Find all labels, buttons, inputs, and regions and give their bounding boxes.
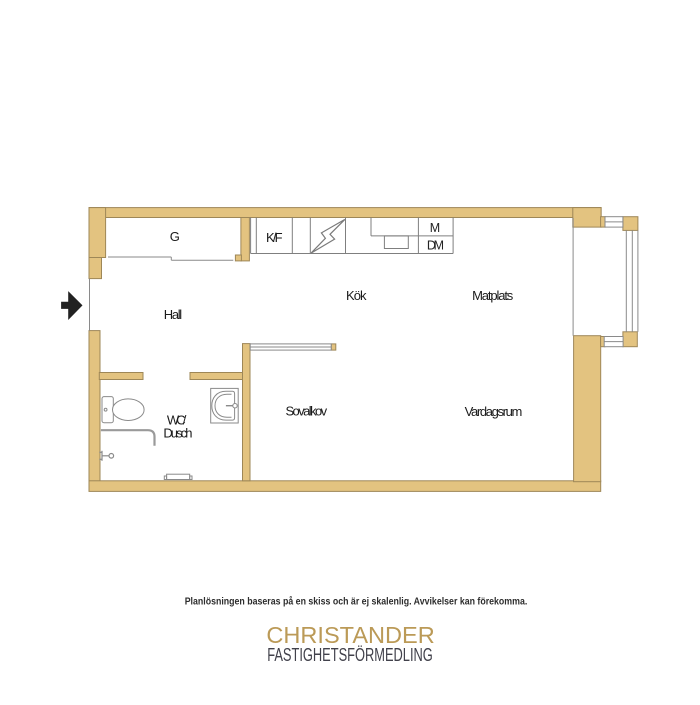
svg-text:Sovalkov: Sovalkov: [285, 404, 327, 419]
svg-text:Kök: Kök: [346, 288, 367, 303]
svg-text:Hall: Hall: [164, 307, 183, 322]
svg-text:K/F: K/F: [266, 230, 283, 245]
svg-text:Matplats: Matplats: [472, 288, 514, 303]
svg-text:G: G: [170, 229, 180, 244]
svg-text:M: M: [430, 221, 440, 235]
svg-text:Planlösningen baseras på en sk: Planlösningen baseras på en skiss och är…: [185, 596, 528, 608]
svg-text:Vardagsrum: Vardagsrum: [465, 404, 523, 419]
svg-text:FASTIGHETSFÖRMEDLING: FASTIGHETSFÖRMEDLING: [267, 645, 433, 665]
svg-text:DM: DM: [427, 239, 444, 253]
svg-text:Dusch: Dusch: [163, 426, 192, 441]
